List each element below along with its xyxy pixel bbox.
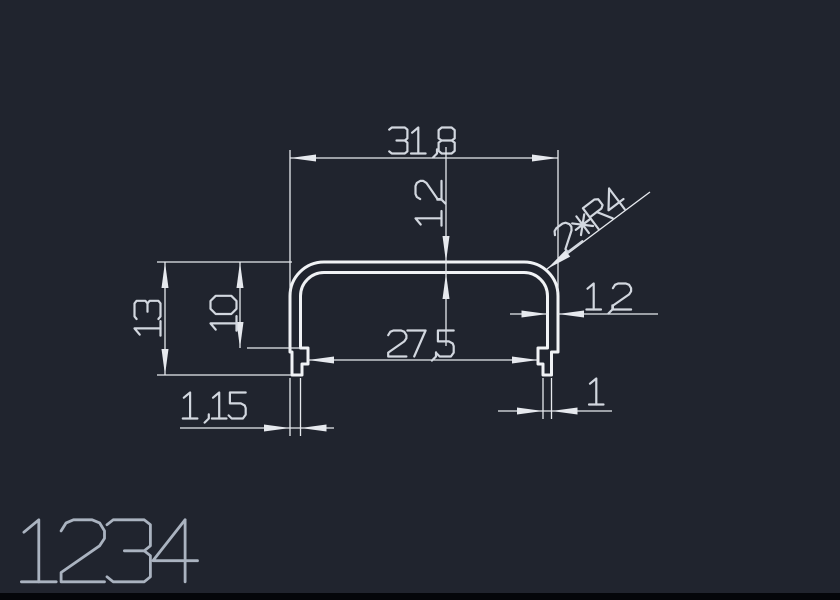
cad-drawing: [0, 0, 840, 600]
drawing-background: [0, 0, 840, 600]
bottom-edge-bar: [0, 593, 840, 600]
cad-drawing-canvas: 31,8 1,2 2*R4 1,2 13 10 27,5 1,15 1 1234: [0, 0, 840, 600]
